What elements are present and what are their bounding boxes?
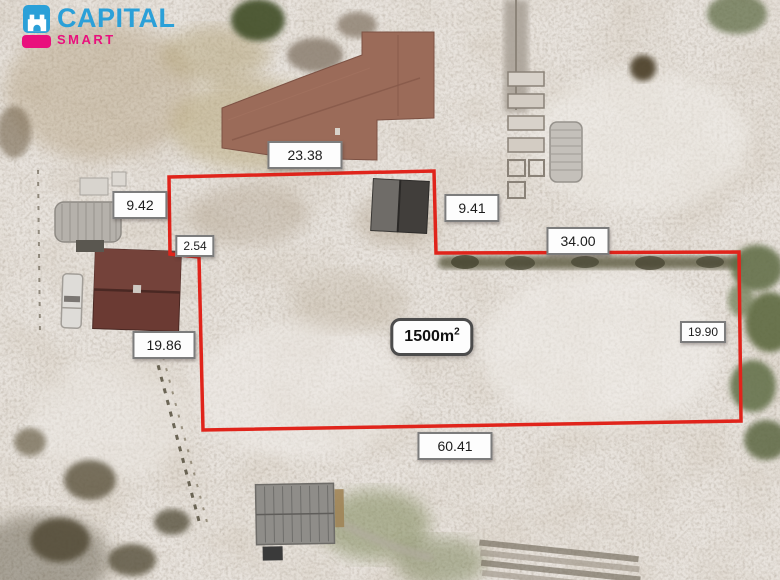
castle-icon [23, 5, 50, 33]
brand-tagline: SMART [57, 33, 176, 46]
dark-shed-roof [371, 179, 430, 234]
dimension-label-top: 23.38 [267, 141, 342, 169]
dimension-label-left-lower: 19.86 [132, 331, 195, 359]
area-superscript: 2 [454, 327, 460, 338]
aerial-scene [0, 0, 780, 580]
white-van [61, 274, 83, 329]
dimension-label-right: 19.90 [680, 321, 726, 343]
dimension-label-bottom: 60.41 [417, 432, 492, 460]
left-house-roof [93, 249, 182, 332]
dimension-label-step-vertical: 9.41 [444, 194, 499, 222]
glass-greenhouse [550, 122, 582, 182]
dimension-label-left-jog: 2.54 [175, 235, 214, 257]
dimension-label-left-upper: 9.42 [112, 191, 167, 219]
area-value: 1500m [404, 328, 454, 345]
brand-name: CAPITAL [57, 5, 176, 32]
aerial-photo: CAPITAL SMART 23.38 9.42 9.41 34.00 2.54… [0, 0, 780, 580]
logo-color-bar [22, 35, 51, 48]
dimension-label-upper-right: 34.00 [546, 227, 609, 255]
area-label: 1500m2 [390, 318, 473, 356]
brand-logo: CAPITAL SMART [22, 5, 176, 48]
